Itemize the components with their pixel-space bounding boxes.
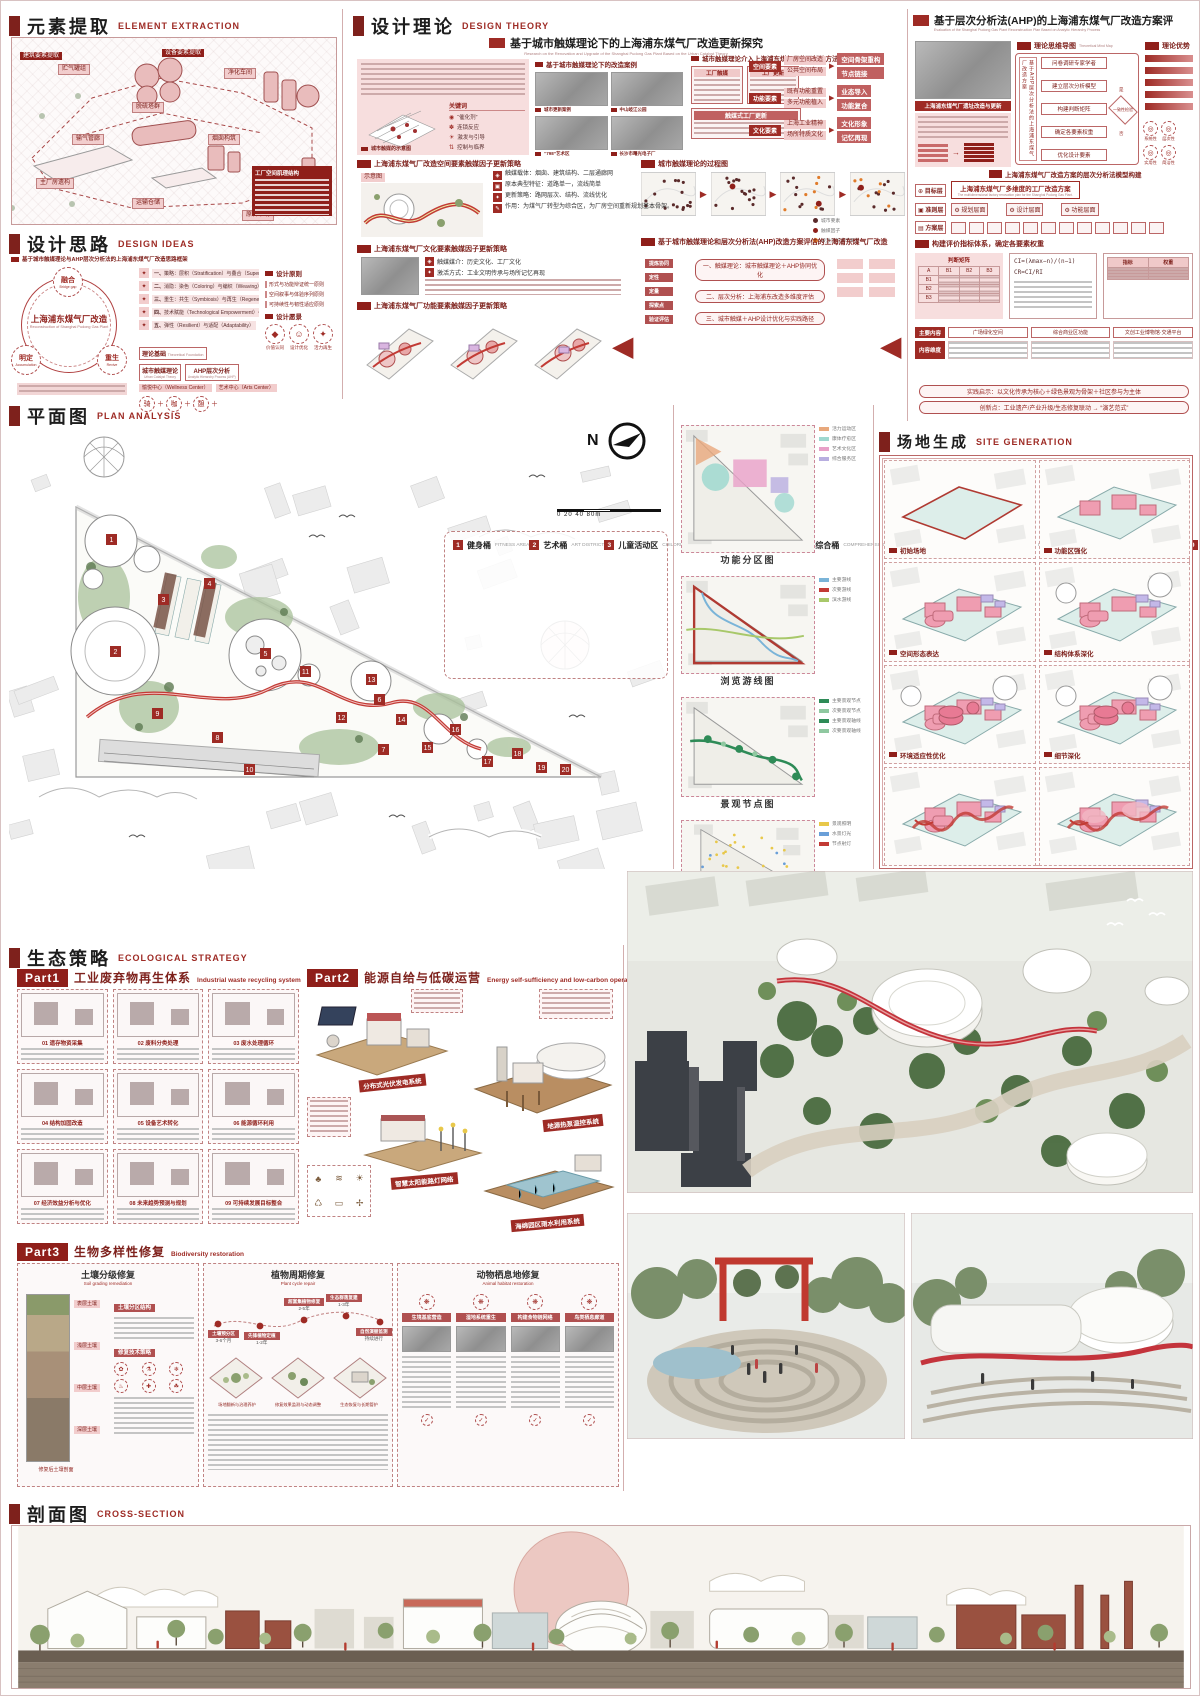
animal-title: 动物栖息地修复 — [402, 1268, 614, 1281]
svg-text:13: 13 — [368, 677, 376, 684]
greek-text — [425, 279, 621, 295]
catalyst-grid-diagram — [363, 103, 439, 147]
plant-title: 植物周期修复 — [208, 1268, 388, 1281]
scheme-box — [1149, 222, 1164, 234]
legend-swatch — [819, 447, 829, 451]
bullet-row: ◈ 触媒载体：烟囱、建筑结构、二层通廊网 — [493, 171, 683, 180]
habitat-chip: 鸟类栖息廊道 — [565, 1313, 614, 1322]
vision-label: 设计优化 — [289, 345, 309, 351]
legend-label: 主要景观轴线 — [832, 717, 861, 724]
study-title: 基于城市触媒理论下的上海浦东煤气厂改造更新探究 — [510, 35, 763, 51]
dot-icon — [813, 228, 818, 233]
weights-title: 构建评价指标体系，确定各要素权重 — [932, 239, 1044, 249]
legend-swatch — [819, 578, 829, 582]
sitegen-svg — [885, 461, 1036, 547]
space-strategy-title-row: 上海浦东煤气厂改造空间要素触媒因子更新策略 — [357, 159, 521, 169]
case-item: 中山岐江公园 — [611, 72, 684, 113]
mindmap-step: 构建判断矩阵 — [1041, 103, 1107, 115]
bullet-text: 作用：为煤气厂转型为综合区，为厂房空间重新规划基本骨架。 — [505, 204, 673, 212]
legend-label: 景观照明 — [832, 820, 851, 827]
minimap-svg — [681, 425, 815, 553]
sitegen-svg — [1040, 563, 1191, 649]
plan-marker: 15 — [422, 742, 433, 753]
check-label: 一致性检验 — [1113, 107, 1133, 113]
greek-text — [1014, 281, 1092, 309]
poster: 元素提取 ELEMENT EXTRACTION 建筑要素提取 设备 — [0, 0, 1200, 1696]
node-en: Bridge gap — [60, 285, 77, 289]
habitat-icon: ❋ — [581, 1294, 597, 1310]
header-zh: 设计思路 — [27, 231, 111, 257]
advantage-icons: ◎ 系统性 ◎ 层次性 ◎ 实用性 ◎ 简洁性 — [1143, 121, 1176, 166]
circle-center-en: Reconstruction of Shanghai Pudong Gas Pl… — [29, 325, 109, 329]
part1-zh: 工业废弃物再生体系 — [74, 969, 191, 986]
strategy-text: 一、策略：层积（Stratification）与叠合（Superimpositi… — [152, 269, 259, 278]
arrow-left-icon: ◀ — [881, 331, 901, 362]
legend-row: 主要景观轴线 — [819, 717, 861, 724]
method-box-title: 工厂触媒 — [694, 69, 740, 77]
part3-zh: 生物多样性修复 — [74, 1243, 165, 1260]
habitat-col: ❋ 鸟类栖息廊道 ✓ — [565, 1294, 614, 1426]
scale-bar: 0 20 40 80m — [557, 509, 661, 518]
soil-column — [26, 1294, 70, 1462]
sitegen-svg — [1040, 666, 1191, 752]
part2-zh: 能源自给与低碳运营 — [364, 969, 481, 986]
element-chip: 主厂房遗构 — [36, 178, 74, 189]
keyword-text: 控制与临界 — [457, 143, 485, 151]
chip: 公共空间布局 — [784, 67, 826, 76]
ahp-intro-card: → — [915, 113, 1011, 167]
element-chip: 烟囱构筑 — [208, 134, 240, 145]
foundation-node: 理论基础 Theoretical Foundation — [139, 347, 207, 360]
legend-swatch — [819, 588, 829, 592]
foundation-en: Theoretical Foundation — [168, 353, 204, 357]
synergy-title: 基于城市触媒理论和层次分析法(AHP)改造方案评估的上海浦东煤气厂改造 — [658, 237, 887, 247]
synergy-oval: 二、层次分析：上海浦东改造多维度评估 — [695, 290, 825, 303]
legend-en: ART DISTRICT — [571, 543, 604, 548]
bullet-text: 原本典型特征：道路单一，流线简单 — [505, 182, 601, 190]
habitat-photo — [511, 1326, 560, 1352]
section-header-cross-section: 剖面图 CROSS-SECTION — [9, 1501, 185, 1527]
part1-en: Industrial waste recycling system — [197, 977, 301, 984]
svg-text:7: 7 — [382, 747, 386, 754]
culture-bullets: ◈ 触媒媒介：历史文化、工厂文化 ✦ 激活方式：工业文明传承与场所记忆再现 — [425, 257, 625, 279]
arrow-left-icon: ◀ — [613, 331, 633, 362]
sitegen-svg — [885, 563, 1036, 649]
table-cell: 综合商业区功能 — [1031, 327, 1111, 338]
advantage-icon-item: ◎ 实用性 — [1143, 145, 1158, 166]
minimap-column: 活力运动区康体疗愈区艺术文化区综合服务区 功能分区图 主要游线次要游线滨水游线 … — [681, 425, 869, 929]
advantage-label: 层次性 — [1161, 136, 1176, 142]
scheme-box — [951, 222, 966, 234]
legend-label: 综合服务区 — [832, 455, 856, 462]
legend-swatch — [819, 598, 829, 602]
legend-swatch — [819, 427, 829, 431]
vision-icon-item: ✦ 活力再生 — [313, 324, 333, 351]
goal-text-en: The multidimensional factory renovation … — [958, 193, 1073, 197]
criteria-box: ⚙ 功能层面 — [1061, 203, 1098, 216]
bullet-text: 更新策略：路网层次、结构、流线优化 — [505, 193, 607, 201]
element-chip: 输气管廊 — [72, 134, 104, 145]
innovation-oval: 创新点：工业遗产/产业升级/生态修复联动 → “演艺范式” — [919, 401, 1189, 414]
legend-swatch — [819, 832, 829, 836]
chip: 上海工业精神 — [784, 120, 826, 129]
solar-lamp-system — [357, 1111, 487, 1177]
table-cell: 广场绿化空间 — [948, 327, 1028, 338]
habitat-photo — [565, 1326, 614, 1352]
synergy-oval: 一、触媒理论：城市触媒理论＋AHP协同优化 — [695, 259, 825, 281]
greek-text — [565, 1356, 614, 1410]
element-outputs: 文化形象 记忆再现 — [837, 117, 871, 143]
mindmap-title: 理论思维导图 — [1034, 41, 1076, 51]
soil-layer-label: 深层土壤 — [74, 1426, 100, 1434]
habitat-columns: ❋ 生境基底营造 ✓ ❋ 湿地系统重生 ✓ ❋ 构建食物链网络 — [402, 1294, 614, 1426]
advantage-bar — [1145, 103, 1193, 110]
greek-text — [694, 79, 740, 101]
section-header-element-extraction: 元素提取 ELEMENT EXTRACTION — [9, 13, 240, 39]
bullet-text: 触媒媒介：历史文化、工厂文化 — [437, 257, 521, 266]
sitegen-step-label: 结构体系深化 — [1044, 648, 1094, 658]
sun-icon: ☀ — [356, 1173, 364, 1184]
foundation-zh: 理论基础 — [142, 352, 166, 358]
soil-title: 土壤分级修复 — [22, 1268, 194, 1281]
legend-row: 次要游线 — [819, 586, 851, 593]
legend-label: 康体疗愈区 — [832, 435, 856, 442]
sitegen-svg — [1040, 461, 1191, 547]
geothermal-system — [467, 1029, 617, 1121]
svg-text:20: 20 — [562, 767, 570, 774]
advantage-bar — [1145, 91, 1193, 98]
callout — [411, 989, 463, 1013]
legend-row: 主要景观节点 — [819, 697, 861, 704]
plant-title-en: Plant cycle repair — [208, 1281, 388, 1286]
sitegen-cell — [884, 767, 1036, 866]
mindmap-title-en: Theoretical Mind Map — [1079, 44, 1113, 48]
legend-swatch — [819, 842, 829, 846]
side-chip: 定性 — [645, 273, 673, 282]
sitegen-step-label: 环境适应性优化 — [889, 750, 946, 760]
plot-diamonds — [208, 1356, 388, 1400]
element-chips: 厂房空间改造 公共空间布局 — [784, 56, 826, 76]
greek-text — [19, 385, 125, 393]
element-label: 功能要素 — [749, 93, 781, 104]
legend-row: 节点射灯 — [819, 840, 851, 847]
habitat-chip: 湿地系统重生 — [456, 1313, 505, 1322]
greek-text — [255, 179, 329, 215]
site-generation-panel: 初始场地功能区强化空间形态表达结构体系深化环境适应性优化细节深化 — [879, 455, 1193, 869]
case-photo-grid: 城市更新案例 中山岐江公园 “798”艺术区 长沙市曙光电子厂 — [535, 72, 683, 157]
plot-caption: 修复效果监测与动态调整 — [269, 1402, 327, 1408]
legend-row: 艺术文化区 — [819, 445, 856, 452]
part3-tag: Part3 — [17, 1243, 68, 1261]
legend-label: 主要游线 — [832, 576, 851, 583]
bullet-icon: ◈ — [425, 257, 434, 266]
strategy-icon: ✦ — [139, 294, 149, 304]
design-ideas-note-card — [17, 383, 127, 395]
legend-swatch — [819, 729, 829, 733]
catalyst-caption: 城市触媒的示意图 — [371, 145, 411, 152]
legend-label: 次要游线 — [832, 586, 851, 593]
soil-layers: 表层土壤浅层土壤中层土壤深层土壤 — [74, 1300, 100, 1434]
habitat-photo — [402, 1326, 451, 1352]
bullet-icon: ▣ — [493, 182, 502, 191]
advantage-label: 系统性 — [1143, 136, 1158, 142]
plant-stage: 生态群落复建1-3年 — [326, 1294, 362, 1308]
strategy-row: ✦ 四、技术赋能（Technological Empowerment）与交互（I… — [139, 307, 259, 317]
center-chip: 艺术中心（Arts Center） — [216, 384, 277, 392]
weight-table-card: 指标权重 — [1103, 253, 1193, 319]
culture-strategy-title-row: 上海浦东煤气厂文化要素触媒因子更新策略 — [357, 244, 507, 254]
subtitle-text: 基于城市触媒理论与AHP层次分析法的上海浦东煤气厂改造思路框架 — [22, 255, 188, 263]
tech-icon: ⚗ — [142, 1362, 156, 1376]
side-chip: 提炼协同 — [645, 259, 673, 268]
legend-swatch — [819, 699, 829, 703]
greek-text — [117, 1128, 200, 1140]
header-zh: 剖面图 — [27, 1501, 90, 1527]
greek-text — [21, 1128, 104, 1140]
keyword-row: ☀ 激发与引导 — [449, 133, 525, 141]
arrow-right-icon: ▶ — [770, 189, 777, 200]
greek-text — [212, 1128, 295, 1140]
keyword-text: 激发与引导 — [457, 133, 485, 141]
element-chip: 脱硫塔群 — [132, 102, 164, 113]
plan-marker: 20 — [560, 764, 571, 775]
function-iso-strip — [359, 315, 437, 393]
synergy-oval: 三、城市触媒＋AHP设计优化与实践路径 — [695, 312, 825, 325]
synergy-title-row: 基于城市触媒理论和层次分析法(AHP)改造方案评估的上海浦东煤气厂改造 — [641, 237, 903, 247]
eco-icon-box: ♣≋☀ ♺▭✢ — [307, 1165, 371, 1217]
table-head: 主要内容 — [915, 327, 945, 338]
divider — [873, 405, 874, 869]
recycle-cell: 07 经济效益分析与优化 — [17, 1149, 108, 1224]
space-schematic — [361, 183, 483, 237]
method-box: 工厂触媒 — [691, 66, 743, 104]
cell-title: 05 设备艺术转化 — [117, 1119, 200, 1127]
legend-label: 主要景观节点 — [832, 697, 861, 704]
ahp-site-photo — [915, 41, 1011, 99]
part2-tag: Part2 — [307, 969, 358, 987]
mindmap-step: 确定各要素权重 — [1041, 126, 1107, 138]
greek-text — [918, 116, 1008, 138]
advantage-icon-item: ◎ 简洁性 — [1161, 145, 1176, 166]
scheme-box — [1059, 222, 1074, 234]
criteria-boxes: ⚙ 规划层面⚙ 设计层面⚙ 功能层面 — [951, 203, 1098, 216]
recycle-cell: 01 遗存物资采集 — [17, 989, 108, 1064]
scheme-box — [1041, 222, 1056, 234]
plan-marker: 13 — [366, 674, 377, 685]
habitat-chip: 构建食物链网络 — [511, 1313, 560, 1322]
legend-zh: 健身桶 — [467, 540, 491, 551]
case-caption: 中山岐江公园 — [620, 107, 647, 113]
synergy-chips — [837, 259, 897, 297]
circle-node-revive: 重生 Revive — [97, 345, 127, 375]
ahp-title-en: Evaluation of the Shanghai Pudong Gas Pl… — [934, 28, 1195, 32]
habitat-chip: 生境基底营造 — [402, 1313, 451, 1322]
plan-marker: 11 — [300, 666, 311, 677]
mindmap-step: 优化设计要素 — [1041, 149, 1107, 161]
habitat-col: ❋ 湿地系统重生 ✓ — [456, 1294, 505, 1426]
minimap-legend: 主要游线次要游线滨水游线 — [819, 576, 851, 674]
vision-glyph-icon: ✦ — [313, 324, 333, 344]
method-element-row: 文化要素 上海工业精神 场所特质文化 ▶ 文化形象 记忆再现 — [749, 117, 907, 143]
advantages-title: 理论优势 — [1162, 41, 1190, 51]
machine-illustration — [21, 993, 104, 1037]
tech-icon: ✿ — [114, 1362, 128, 1376]
recycle-cell: 06 能源循环利用 — [208, 1069, 299, 1144]
cell-title: 07 经济效益分析与优化 — [21, 1199, 104, 1207]
plan-marker: 19 — [536, 762, 547, 773]
part2-title-row: Part2 能源自给与低碳运营 Energy self-sufficiency … — [307, 969, 643, 987]
vision-label: 价值认同 — [265, 345, 285, 351]
bullet-text: 激活方式：工业文明传承与场所记忆再现 — [437, 268, 545, 277]
svg-text:14: 14 — [398, 717, 406, 724]
soil-panel: 土壤分级修复 Soil grading remediation 表层土壤浅层土壤… — [17, 1263, 199, 1487]
advantage-glyph-icon: ◎ — [1161, 121, 1176, 136]
chip: 多元功能植入 — [784, 99, 826, 108]
process-map — [711, 172, 766, 216]
chip: 既有功能重置 — [784, 88, 826, 97]
node-en: Urban Catalyst Theory — [142, 375, 178, 379]
foundation-nodes: 城市触媒理论Urban Catalyst Theory AHP层次分析Analy… — [139, 364, 259, 381]
circle-center-zh: 上海浦东煤气厂改造 — [29, 313, 109, 325]
formula: CR=CI/RI — [1014, 269, 1092, 276]
header-block-icon — [879, 432, 890, 452]
function-iso-strip — [443, 315, 521, 393]
minimap-caption: 浏览游线图 — [681, 674, 815, 687]
circle-center: 上海浦东煤气厂改造 Reconstruction of Shanghai Pud… — [29, 313, 109, 329]
header-block-icon — [9, 234, 20, 254]
svg-text:8: 8 — [216, 735, 220, 742]
header-block-icon — [9, 16, 20, 36]
case-caption: 城市更新案例 — [544, 107, 571, 113]
bullet-icon: ✦ — [493, 193, 502, 202]
divider — [623, 945, 624, 1491]
weights-title-row: 构建评价指标体系，确定各要素权重 — [915, 239, 1044, 249]
advantage-glyph-icon: ◎ — [1143, 145, 1158, 160]
keyword-icon: ✽ — [449, 124, 454, 131]
svg-text:15: 15 — [424, 745, 432, 752]
machine-illustration — [117, 1073, 200, 1117]
section-header-ecology: 生态策略 ECOLOGICAL STRATEGY — [9, 945, 248, 971]
svg-text:5: 5 — [264, 651, 268, 658]
legend-row: 城市要素 — [813, 217, 859, 224]
node-en: Accumulation — [15, 363, 36, 367]
strategy-row: ✦ 三、重生：共生（Symbiosis）与再生（Regeneration） — [139, 294, 259, 304]
insight-oval: 实践启示：以文化传承为核心＋绿色景观为骨架＋社区参与为主体 — [919, 385, 1189, 398]
cell-title: 09 可持续发展目标整合 — [212, 1199, 295, 1207]
cases-block: 基于城市触媒理论下的改造案例 城市更新案例 中山岐江公园 “798”艺术区 — [535, 59, 683, 157]
vision-icon-item: ☺ 设计优化 — [289, 324, 309, 351]
principle-item: 可持续性与韧性适应原则 — [265, 301, 339, 308]
tech-icon-grid: ✿ ⚗ ❄ ♨ ✚ ☘ — [114, 1362, 194, 1393]
legend-swatch — [819, 437, 829, 441]
header-en: CROSS-SECTION — [97, 1509, 185, 1519]
part2-diagrams: 分布式光伏发电系统 地源热泵温控系统 智慧太阳能路灯网络 海绵园区雨水利用系统 … — [307, 989, 619, 1233]
criteria-box: ⚙ 规划层面 — [951, 203, 988, 216]
design-ideas-panel: 基于城市触媒理论与AHP层次分析法的上海浦东煤气厂改造思路框架 上海浦东煤气厂改… — [11, 255, 337, 397]
vision-icon-item: ◆ 价值认同 — [265, 324, 285, 351]
header-block-icon — [9, 1504, 20, 1524]
header-en: SITE GENERATION — [976, 437, 1073, 447]
minimap-legend: 活力运动区康体疗愈区艺术文化区综合服务区 — [819, 425, 856, 553]
legend-swatch — [819, 822, 829, 826]
strategy-text: 五、弹性（Resilient）与适配（Adaptability） — [152, 321, 256, 330]
case-item: 城市更新案例 — [535, 72, 608, 113]
strategy-text: 二、消隐：染色（Coloring）与编织（Weaving） — [152, 282, 259, 291]
legend-number: 1 — [453, 540, 463, 550]
legend-swatch — [819, 709, 829, 713]
minimap-caption: 景观节点图 — [681, 797, 815, 810]
arrow-right-icon: ▶ — [700, 189, 707, 200]
legend-number: 2 — [529, 540, 539, 550]
bullet-icon: ◈ — [493, 171, 502, 180]
gate-plaza-render — [627, 1213, 905, 1439]
dot-icon — [813, 218, 818, 223]
scheme-box — [987, 222, 1002, 234]
minimap-block: 主要游线次要游线滨水游线 浏览游线图 — [681, 576, 869, 687]
recycle-cell: 03 废水处理循环 — [208, 989, 299, 1064]
advantage-glyph-icon: ◎ — [1143, 121, 1158, 136]
schematic-label: 示意图 — [361, 173, 385, 182]
plan-marker: 3 — [158, 594, 169, 605]
legend-label: 活力运动区 — [832, 425, 856, 432]
case-item: “798”艺术区 — [535, 116, 608, 157]
cell-title: 03 废水处理循环 — [212, 1039, 295, 1047]
ahp-intro-title: 上海浦东煤气厂遗址改造与更新 — [915, 101, 1011, 111]
sitegen-cell: 环境适应性优化 — [884, 665, 1036, 764]
bullet-icon: ✎ — [493, 204, 502, 213]
mindmap-side-label: 基于AHP层次分析法的上海浦东煤气厂改造方案 — [1019, 57, 1037, 161]
sitegen-step-label: 空间形态表达 — [889, 648, 939, 658]
keyword-icon: ☀ — [449, 134, 454, 141]
element-outputs: 业态导入 功能复合 — [837, 85, 871, 111]
plan-marker: 2 — [110, 646, 121, 657]
greek-text — [511, 1356, 560, 1410]
element-chip: 运输仓储 — [132, 198, 164, 209]
header-block-icon — [353, 16, 364, 36]
plus-icon: ＋ — [211, 399, 218, 409]
foundation-flow: 理论基础 Theoretical Foundation 城市触媒理论Urban … — [139, 343, 259, 412]
method-element-row: 功能要素 既有功能重置 多元功能植入 ▶ 业态导入 功能复合 — [749, 85, 907, 111]
soil-layer-label: 表层土壤 — [74, 1300, 100, 1308]
sponge-system — [479, 1145, 619, 1215]
greek-text — [117, 1208, 200, 1220]
greek-text — [21, 1208, 104, 1220]
sitegen-cell: 初始场地 — [884, 460, 1036, 559]
habitat-col: ❋ 生境基底营造 ✓ — [402, 1294, 451, 1426]
center-chip: 愉悦中心（Wellness Center） — [139, 384, 212, 392]
cell-title: 06 能源循环利用 — [212, 1119, 295, 1127]
svg-text:1: 1 — [110, 537, 114, 544]
sitegen-svg — [885, 768, 1036, 854]
habitat-bottom-icon: ✓ — [529, 1414, 541, 1426]
keywords-list: ◉ “催化剂” ✽ 连锁反应 ☀ 激发与引导 ⇅ — [449, 113, 525, 151]
criteria-box: ⚙ 设计层面 — [1006, 203, 1043, 216]
case-photo — [611, 116, 684, 150]
svg-text:18: 18 — [514, 751, 522, 758]
minimap-legend: 主要景观节点次要景观节点主要景观轴线次要景观轴线 — [819, 697, 861, 797]
legend-row: 主要游线 — [819, 576, 851, 583]
greek-text — [456, 1356, 505, 1410]
legend-label: 水景灯光 — [832, 830, 851, 837]
function-strategy-title: 上海浦东煤气厂功能要素触媒因子更新策略 — [374, 301, 507, 311]
svg-text:10: 10 — [246, 767, 254, 774]
yes-label: 是 — [1119, 87, 1124, 93]
habitat-icon: ❋ — [419, 1294, 435, 1310]
synergy-rows: 一、触媒理论：城市触媒理论＋AHP协同优化二、层次分析：上海浦东改造多维度评估三… — [695, 259, 825, 325]
check-diamond: 一致性检验 — [1108, 95, 1138, 125]
svg-text:4: 4 — [208, 581, 212, 588]
cross-section-render — [11, 1525, 1191, 1689]
